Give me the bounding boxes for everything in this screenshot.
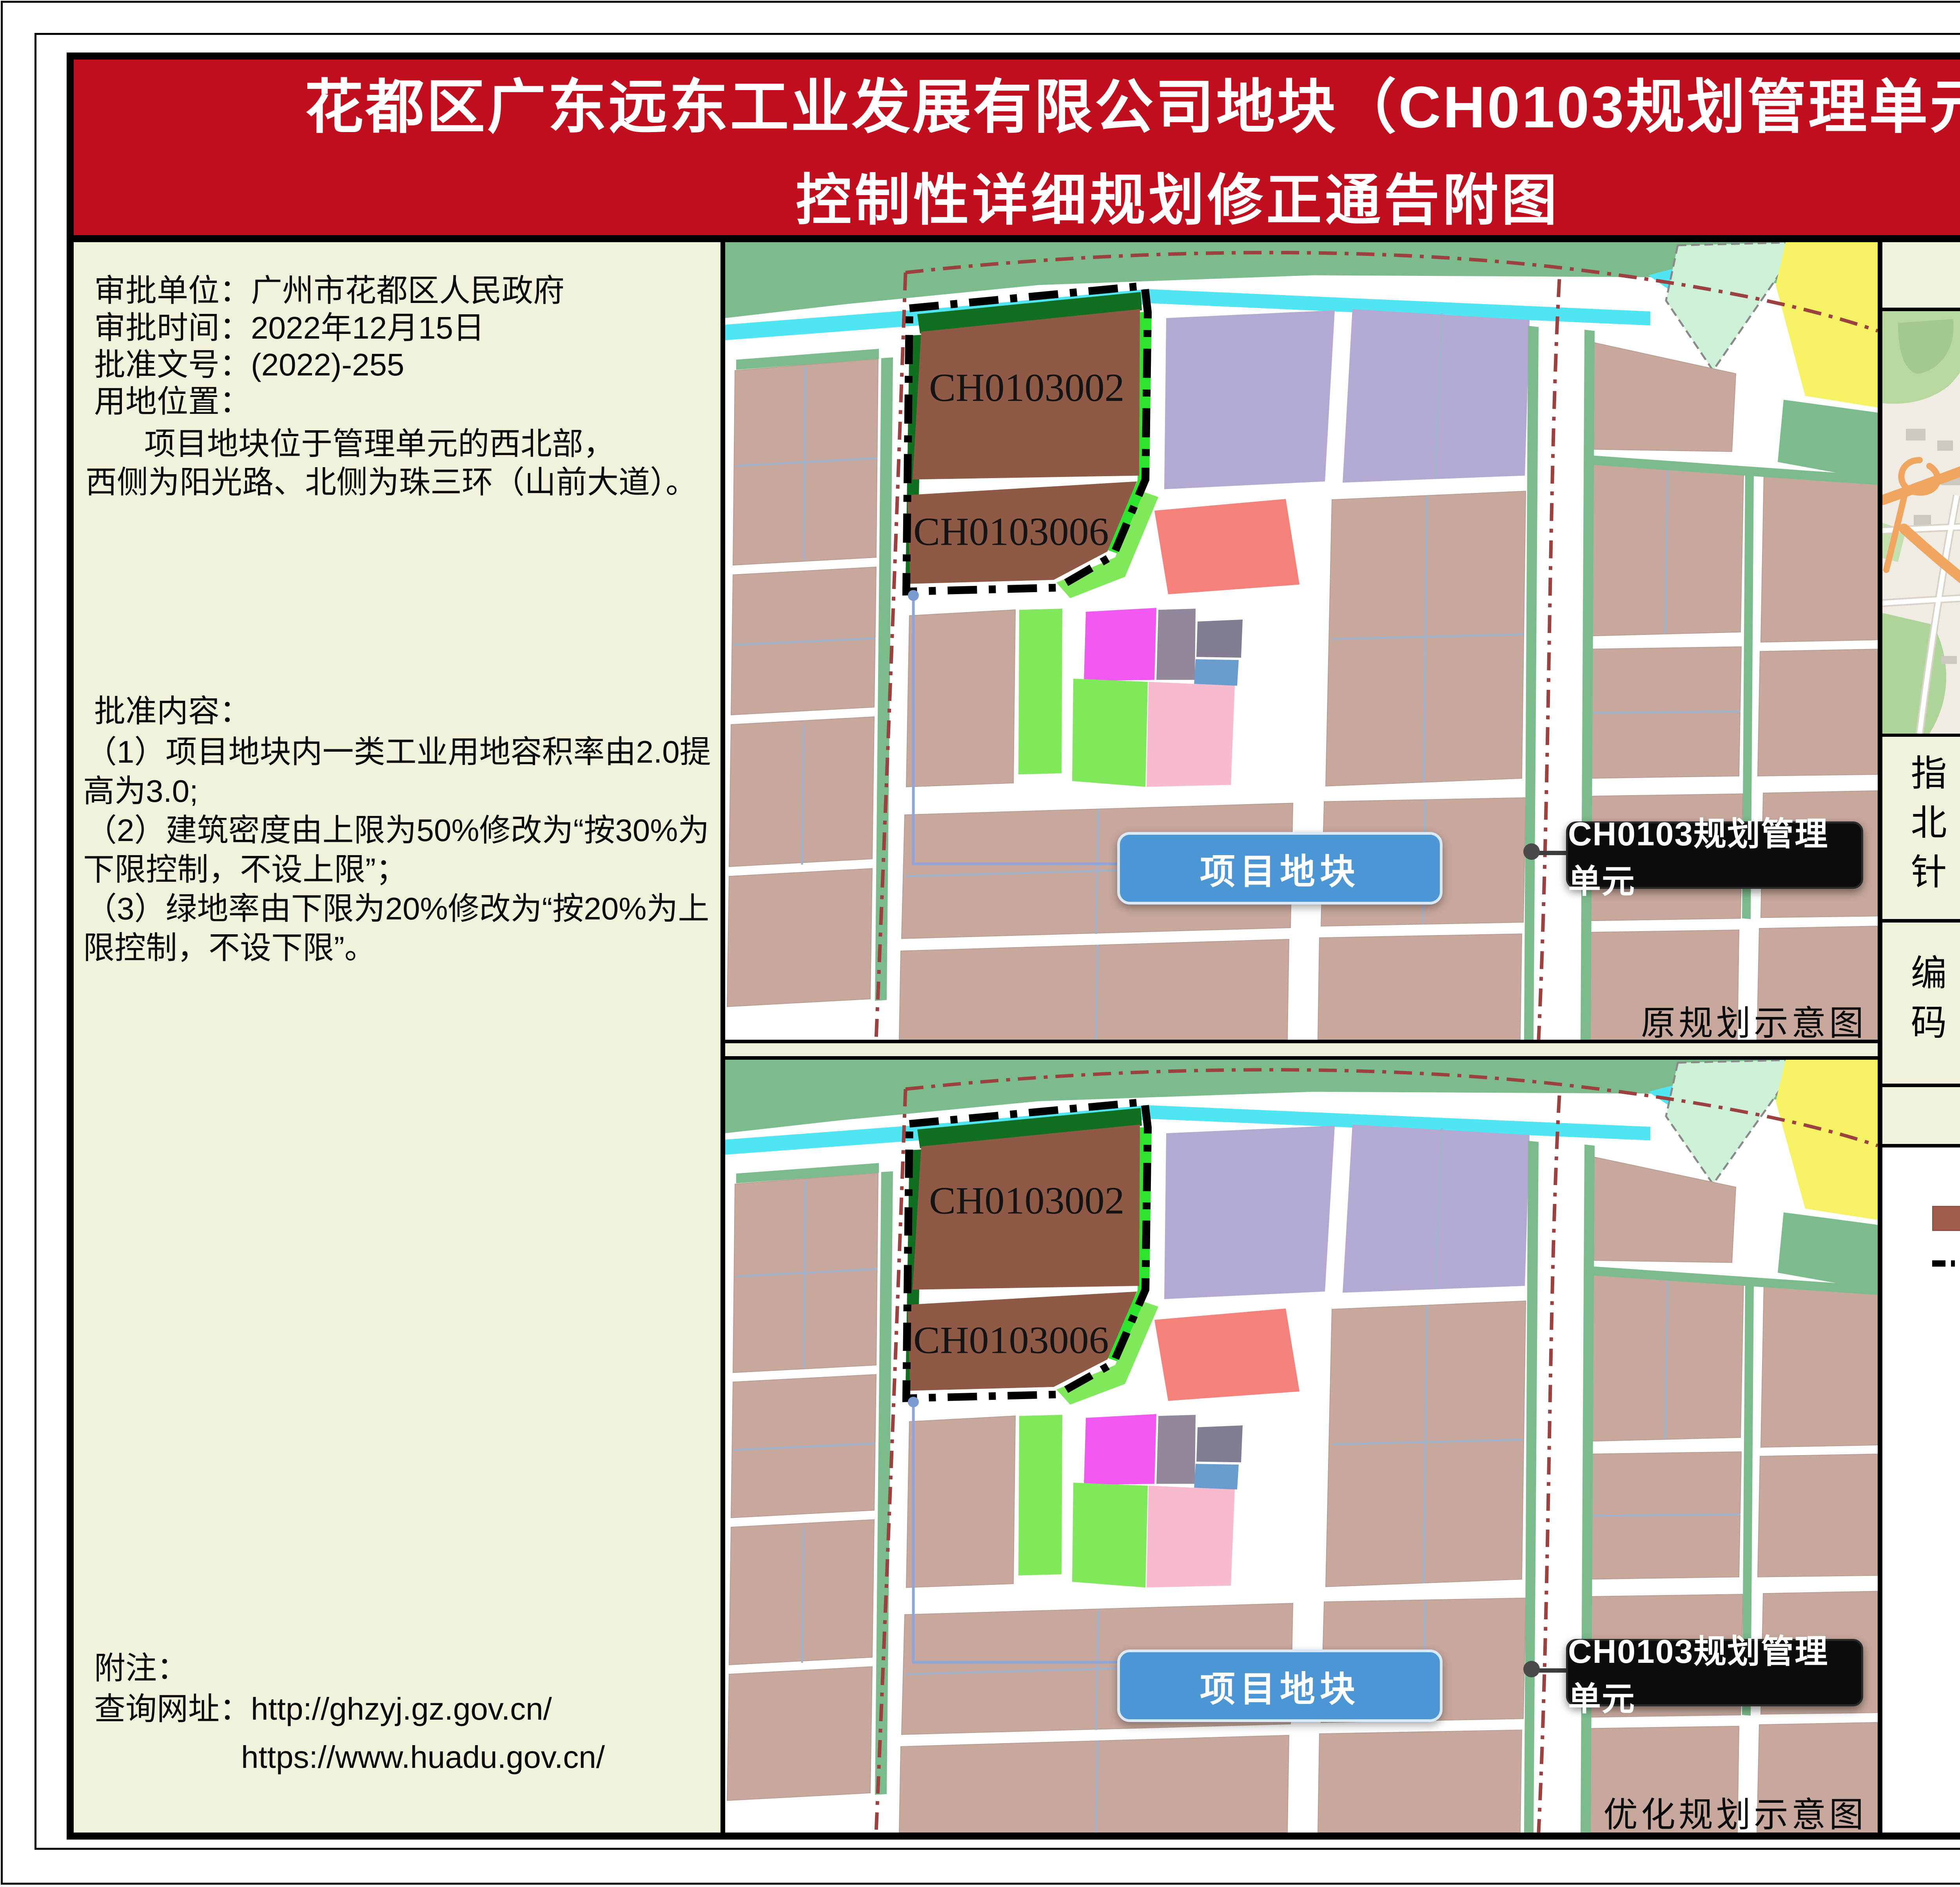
title-line-1: 花都区广东远东工业发展有限公司地块（CH0103规划管理单元） <box>305 60 1960 145</box>
location-line-2: 西侧为阳光路、北侧为珠三环（山前大道）。 <box>85 462 697 503</box>
project-parcel-callout: 项目地块 <box>1117 832 1443 905</box>
maps-column: 项目地块 CH0103规划管理单元 原规划示意图 项目地块 CH0103规划管理… <box>725 242 1878 1833</box>
code-row: 编码 CH0103 <box>1882 923 1960 1087</box>
location-label: 用地位置： <box>94 381 251 422</box>
location-minimap: 珠三环 金狮大道 项目位置 秀全水库 广清高速 <box>1882 311 1960 737</box>
legend-swatch-boundary-dashline <box>1932 1258 1960 1269</box>
content-line-4: 下限控制，不设上限”； <box>83 849 407 890</box>
compass-label: 指北针 <box>1900 754 1952 902</box>
right-panel: 区位图 <box>1878 242 1960 1833</box>
content-label: 批准内容： <box>94 691 251 732</box>
compass-row-header: 指北针 <box>1882 737 1960 919</box>
content-line-6: 限控制，不设下限”。 <box>83 928 376 968</box>
title-line-2: 控制性详细规划修正通告附图 <box>796 155 1560 236</box>
title-block: 花都区广东远东工业发展有限公司地块（CH0103规划管理单元） 控制性详细规划修… <box>74 60 1960 242</box>
legend-body: 工业用地 项目地块范围 <box>1882 1147 1960 1833</box>
location-map-title: 区位图 <box>1882 242 1960 311</box>
sheet-content: 花都区广东远东工业发展有限公司地块（CH0103规划管理单元） 控制性详细规划修… <box>67 53 1960 1840</box>
project-parcel-callout: 项目地块 <box>1117 1650 1443 1722</box>
map-caption-original: 原规划示意图 <box>1641 995 1867 1040</box>
legend-title: 图 例 <box>1882 1087 1960 1147</box>
compass-row: 指北针 N <box>1882 737 1960 923</box>
approval-unit: 审批单位：广州市花都区人民政府 <box>94 270 564 311</box>
map-original-plan: 项目地块 CH0103规划管理单元 原规划示意图 <box>725 242 1878 1040</box>
body-area: 审批单位：广州市花都区人民政府 审批时间：2022年12月15日 批准文号：(2… <box>74 242 1960 1833</box>
maps-separator <box>725 1040 1878 1060</box>
unit-callout: CH0103规划管理单元 <box>1566 1639 1863 1706</box>
note-url-2: https://www.huadu.gov.cn/ <box>241 1737 605 1778</box>
location-line-1: 项目地块位于管理单元的西北部， <box>144 424 615 464</box>
content-line-5: （3）绿地率由下限为20%修改为“按20%为上 <box>85 888 709 929</box>
approval-number: 批准文号：(2022)-255 <box>94 344 404 385</box>
info-panel: 审批单位：广州市花都区人民政府 审批时间：2022年12月15日 批准文号：(2… <box>74 242 725 1833</box>
approval-time: 审批时间：2022年12月15日 <box>94 308 485 348</box>
map-original-svg <box>725 242 1878 1040</box>
content-line-1: （1）项目地块内一类工业用地容积率由2.0提 <box>85 732 711 772</box>
note-label: 附注： <box>94 1648 188 1689</box>
code-label: 编码 <box>1900 954 1952 1053</box>
unit-label-dot <box>1523 843 1540 860</box>
unit-callout: CH0103规划管理单元 <box>1566 821 1863 889</box>
content-line-2: 高为3.0; <box>83 771 198 812</box>
map-caption-optimized: 优化规划示意图 <box>1603 1787 1867 1833</box>
map-optimized-plan: 项目地块 CH0103规划管理单元 优化规划示意图 <box>725 1060 1878 1833</box>
legend-swatch-industrial <box>1932 1206 1960 1231</box>
unit-label-dot <box>1523 1661 1540 1677</box>
code-row-header: 编码 <box>1882 923 1960 1084</box>
minimap-svg: 珠三环 金狮大道 项目位置 秀全水库 广清高速 <box>1882 311 1960 734</box>
content-line-3: （2）建筑密度由上限为50%修改为“按30%为 <box>85 810 709 851</box>
note-url-1: 查询网址：http://ghzyj.gz.gov.cn/ <box>94 1689 552 1729</box>
